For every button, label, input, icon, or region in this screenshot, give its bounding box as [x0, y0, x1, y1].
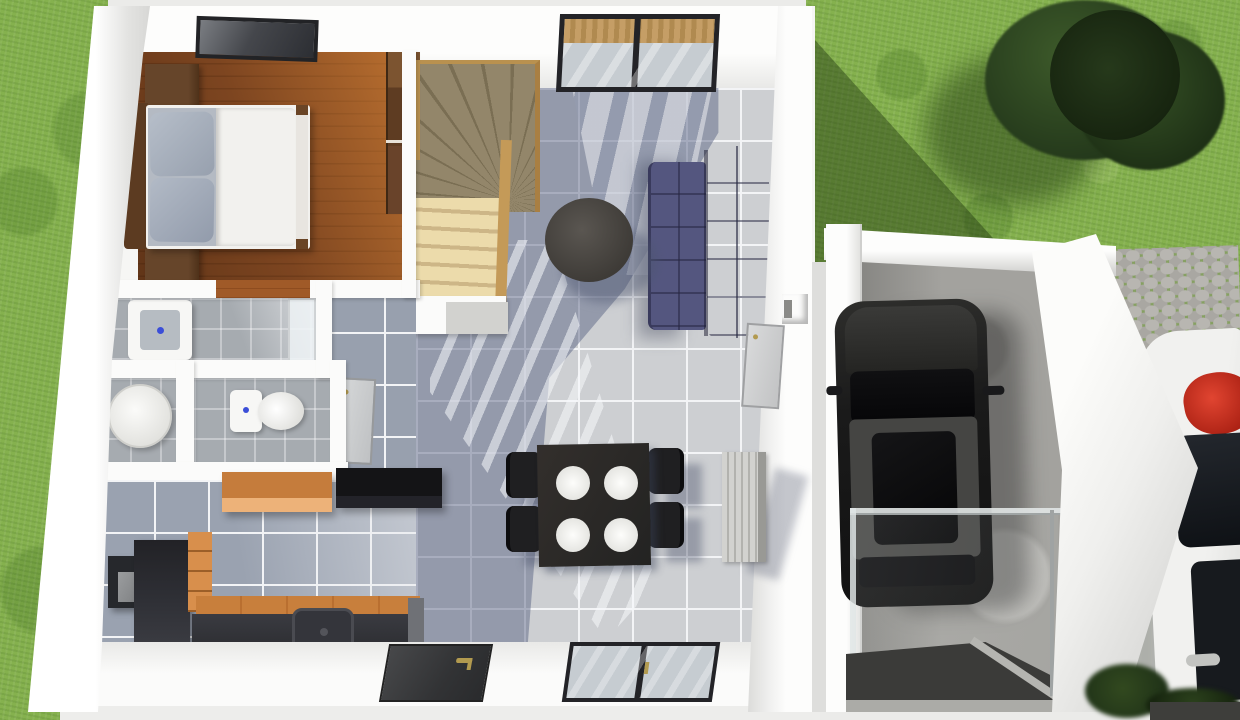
front-door-handle-stem [467, 658, 473, 670]
white-car-door-handle [1186, 653, 1221, 667]
glass-balustrade-post [1050, 510, 1054, 696]
living-north-window [556, 14, 720, 92]
bed-duvet [216, 108, 296, 246]
toilet-bowl [258, 392, 304, 430]
south-outside-ground [60, 706, 820, 720]
stairs-straight-flight [414, 198, 504, 302]
wall-niche [782, 294, 808, 324]
dining-chair-3 [648, 448, 684, 494]
car-windshield [850, 368, 975, 423]
front-door [379, 644, 493, 702]
wall-bath-mid [100, 360, 332, 378]
car-mirror-left [826, 386, 842, 395]
skylight-window [195, 16, 318, 62]
plate-2 [604, 466, 638, 500]
car-hood [844, 304, 978, 373]
platform-front-step [846, 700, 1064, 712]
glass-balustrade-top-rail [850, 508, 1064, 515]
wall-cabinet-black [336, 468, 442, 508]
plate-4 [604, 518, 638, 552]
south-window [562, 642, 720, 702]
dining-chair-4 [648, 502, 684, 548]
dining-chair-2 [506, 506, 542, 552]
sink-drain [320, 628, 328, 636]
bed-foot-rail [296, 105, 308, 249]
shower-screen [288, 298, 316, 362]
sofa-section-seam [704, 150, 708, 336]
plate-1 [556, 466, 590, 500]
fridge-tall-unit [134, 540, 190, 644]
toilet-flush-button [243, 407, 249, 413]
living-door-open [741, 323, 785, 409]
wall-cabinet-orange [222, 472, 332, 512]
tree [955, 0, 1240, 210]
stairs-winder-fan [414, 60, 540, 212]
washbasin-drain [157, 327, 164, 334]
understairs-cupboard-front [446, 302, 508, 334]
sofa-back-section [707, 146, 769, 338]
dining-table [537, 443, 651, 567]
window-reflection [561, 43, 713, 87]
washbasin [128, 300, 192, 360]
car-mirror-right [982, 386, 1004, 396]
bed-pillow-2 [149, 177, 214, 242]
washing-machine [108, 384, 172, 448]
radiator [722, 452, 766, 562]
wall-stairs-divider [402, 50, 416, 298]
niche-slot [784, 300, 792, 318]
dark-paving-bottom-right [1150, 702, 1240, 720]
plate-3 [556, 518, 590, 552]
tree-foliage-core [1050, 10, 1180, 140]
living-door-handle [753, 334, 758, 339]
south-window-reflection [566, 646, 715, 698]
floorplan-render [0, 0, 1240, 720]
bed-pillow-1 [149, 111, 214, 176]
bedroom-doorway-wood [216, 280, 310, 298]
coffee-table [545, 198, 633, 282]
white-car-side-window [1190, 558, 1240, 701]
sofa-seat-section [648, 162, 706, 330]
